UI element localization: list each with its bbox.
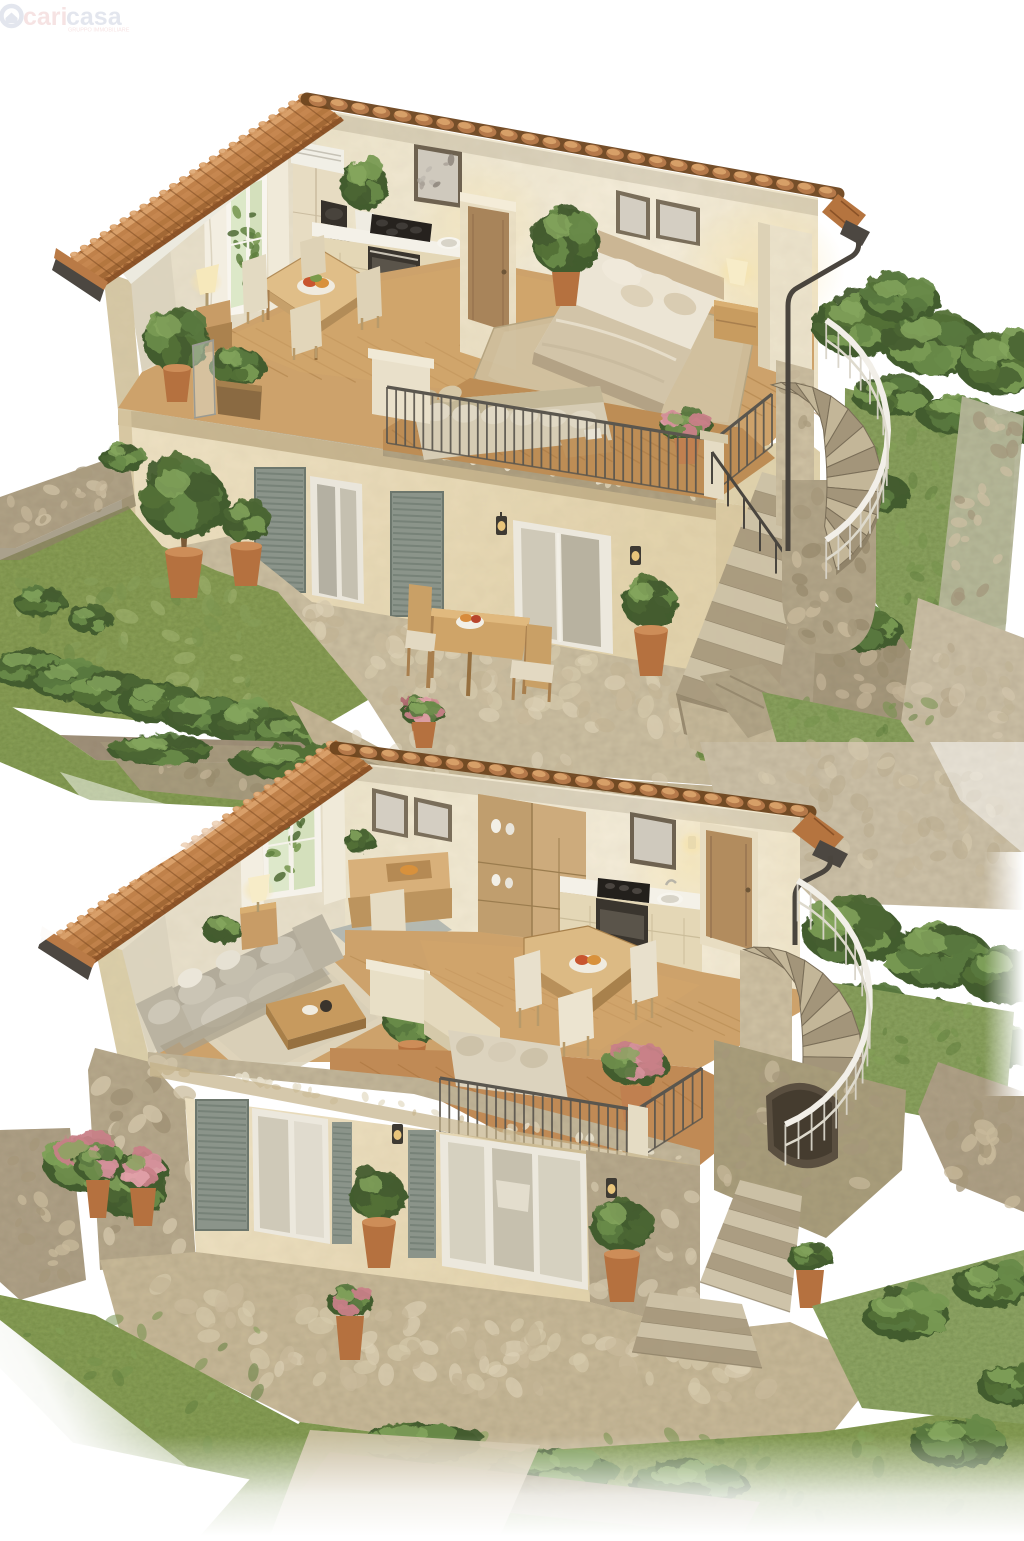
svg-text:GRUPPO IMMOBILIARE: GRUPPO IMMOBILIARE	[68, 28, 130, 34]
svg-text:cari: cari	[23, 3, 67, 31]
